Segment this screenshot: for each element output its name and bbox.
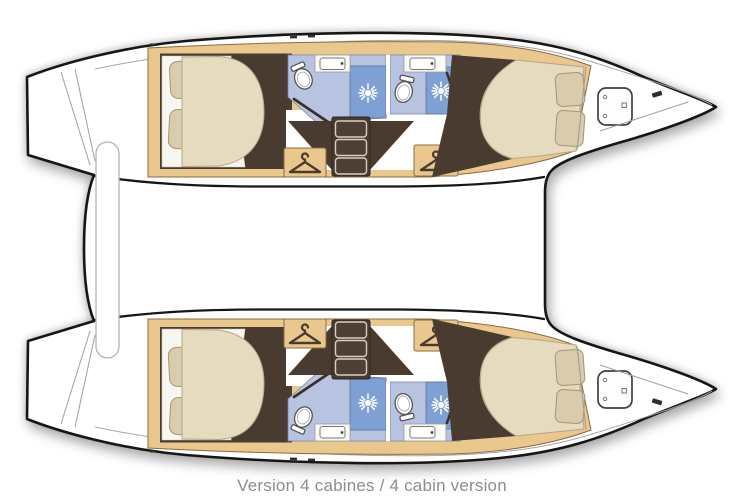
catamaran-floor-plan xyxy=(0,0,744,496)
upper-hull xyxy=(61,35,712,187)
lower-hull xyxy=(61,310,712,462)
center-beam xyxy=(96,142,119,358)
floor-plan-page: Version 4 cabines / 4 cabin version xyxy=(0,0,744,496)
plan-caption: Version 4 cabines / 4 cabin version xyxy=(0,476,744,496)
boat-body xyxy=(27,33,716,463)
